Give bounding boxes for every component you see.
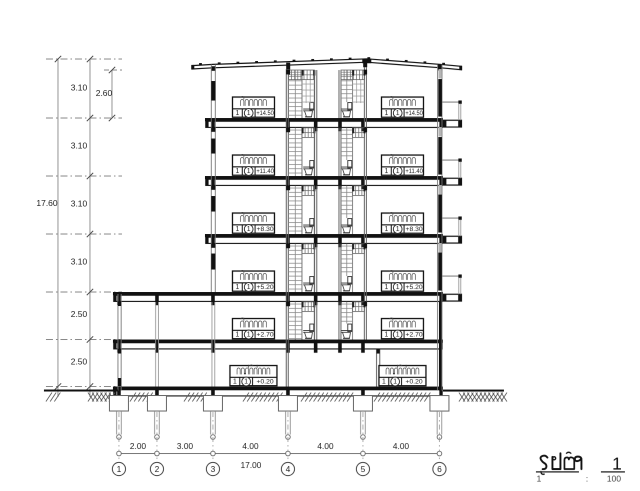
svg-text:+0.20: +0.20 [256, 379, 273, 386]
svg-text:2.50: 2.50 [71, 309, 88, 319]
svg-text:+11.40: +11.40 [256, 168, 274, 175]
svg-text:100: 100 [607, 474, 621, 484]
svg-text:1: 1 [396, 168, 400, 175]
svg-text:1: 1 [235, 226, 239, 233]
svg-text:1: 1 [393, 379, 397, 386]
svg-text::: : [586, 474, 588, 484]
svg-text:6: 6 [437, 465, 442, 474]
svg-text:1: 1 [247, 226, 251, 233]
svg-text:1: 1 [384, 284, 388, 291]
svg-text:2.50: 2.50 [71, 357, 88, 367]
svg-text:+14.50: +14.50 [405, 110, 423, 117]
svg-text:3: 3 [211, 465, 216, 474]
svg-text:+0.20: +0.20 [405, 379, 422, 386]
svg-text:2.00: 2.00 [130, 441, 147, 451]
svg-text:2.60: 2.60 [96, 88, 113, 98]
svg-text:1: 1 [396, 332, 400, 339]
svg-text:1: 1 [117, 465, 122, 474]
svg-text:+11.40: +11.40 [405, 168, 423, 175]
svg-text:1: 1 [396, 226, 400, 233]
svg-text:+8.30: +8.30 [256, 226, 273, 233]
svg-text:1: 1 [233, 379, 237, 386]
svg-text:1: 1 [384, 226, 388, 233]
svg-text:1: 1 [396, 110, 400, 117]
svg-text:4.00: 4.00 [393, 441, 410, 451]
svg-text:3.10: 3.10 [71, 141, 88, 151]
svg-text:3.00: 3.00 [177, 441, 194, 451]
svg-text:+5.20: +5.20 [405, 284, 422, 291]
svg-text:5: 5 [361, 465, 366, 474]
svg-text:3.10: 3.10 [71, 257, 88, 267]
svg-text:1: 1 [235, 284, 239, 291]
svg-text:4: 4 [286, 465, 291, 474]
svg-text:1: 1 [247, 110, 251, 117]
svg-text:1: 1 [384, 168, 388, 175]
svg-text:1: 1 [235, 168, 239, 175]
svg-text:1: 1 [384, 332, 388, 339]
svg-text:1: 1 [235, 110, 239, 117]
svg-text:+14.50: +14.50 [256, 110, 274, 117]
svg-text:1: 1 [247, 284, 251, 291]
svg-text:1: 1 [396, 284, 400, 291]
svg-text:1: 1 [235, 332, 239, 339]
svg-text:+2.70: +2.70 [256, 332, 273, 339]
svg-text:+8.30: +8.30 [405, 226, 422, 233]
svg-text:1: 1 [247, 168, 251, 175]
svg-text:3.10: 3.10 [71, 83, 88, 93]
svg-text:4.00: 4.00 [242, 441, 259, 451]
svg-text:+2.70: +2.70 [405, 332, 422, 339]
svg-text:17.60: 17.60 [36, 198, 58, 208]
svg-text:+5.20: +5.20 [256, 284, 273, 291]
svg-text:3.10: 3.10 [71, 199, 88, 209]
svg-text:4.00: 4.00 [317, 441, 334, 451]
svg-text:2: 2 [155, 465, 160, 474]
svg-text:17.00: 17.00 [241, 460, 262, 470]
svg-text:1: 1 [244, 379, 248, 386]
svg-text:1: 1 [612, 454, 622, 474]
svg-text:1: 1 [382, 379, 386, 386]
svg-text:1: 1 [384, 110, 388, 117]
svg-text:1: 1 [537, 474, 542, 484]
svg-text:1: 1 [247, 332, 251, 339]
